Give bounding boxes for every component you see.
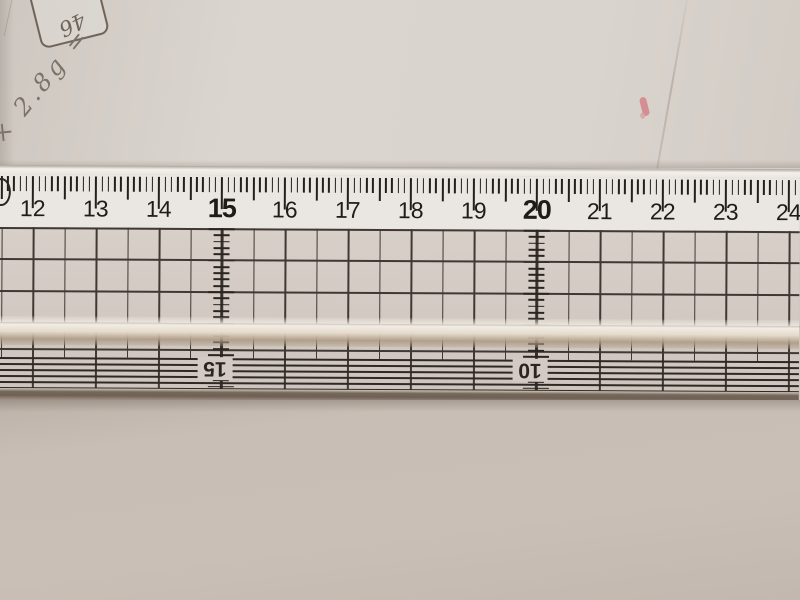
tick-mark — [246, 177, 248, 192]
mm-tick — [213, 310, 229, 312]
mm-tick — [214, 247, 230, 249]
tick-mark — [612, 179, 614, 194]
tick-mark — [681, 180, 683, 195]
tick-mark — [492, 179, 494, 194]
mm-tick — [528, 280, 544, 282]
tick-mark — [454, 178, 456, 193]
tick-mark — [353, 178, 355, 193]
tick-mark — [649, 179, 651, 194]
mm-tick — [208, 260, 234, 262]
photo-canvas: 46 × 2.8g = 12131415161718192021222324 1… — [0, 0, 800, 600]
partial-mark — [0, 178, 11, 206]
tick-mark — [486, 179, 488, 194]
mm-tick — [528, 305, 544, 307]
mm-tick — [528, 299, 544, 301]
tick-mark — [738, 180, 740, 195]
tick-mark — [183, 177, 185, 192]
tick-mark — [460, 178, 462, 193]
tick-mark — [322, 178, 324, 193]
mm-tick — [214, 234, 230, 236]
mm-tick — [529, 236, 545, 238]
tick-mark — [177, 177, 179, 192]
ruler-number: 24 — [776, 199, 800, 227]
tick-mark — [89, 176, 91, 191]
corner-crease-line — [4, 0, 13, 36]
mm-tick — [208, 291, 234, 293]
tick-mark — [593, 179, 595, 194]
mm-tick — [213, 348, 229, 350]
tick-mark — [190, 177, 192, 200]
tick-mark — [208, 177, 210, 192]
tick-mark — [139, 177, 141, 192]
tick-mark — [775, 180, 777, 195]
tick-mark — [416, 178, 418, 193]
tick-mark — [145, 177, 147, 192]
mm-tick — [214, 241, 230, 243]
ruler-grid: 1510 — [0, 227, 800, 392]
tick-mark — [706, 180, 708, 195]
tick-mark — [794, 180, 796, 195]
ruler-number: 20 — [523, 194, 551, 227]
tick-mark — [756, 180, 758, 203]
tick-mark — [643, 179, 645, 194]
tick-mark — [769, 180, 771, 195]
tick-mark — [782, 180, 784, 195]
tick-mark — [316, 178, 318, 201]
tick-mark — [385, 178, 387, 193]
tick-mark — [744, 180, 746, 195]
tick-mark — [423, 178, 425, 193]
tick-mark — [479, 179, 481, 194]
tick-mark — [523, 179, 525, 194]
ruler-number: 21 — [587, 198, 613, 226]
tick-mark — [76, 176, 78, 191]
tick-mark — [637, 179, 639, 194]
tick-mark — [568, 179, 570, 202]
pink-ink-mark — [639, 96, 650, 116]
grid-hline — [0, 348, 799, 354]
mm-tick — [213, 285, 229, 287]
tick-mark — [253, 177, 255, 200]
tick-mark — [580, 179, 582, 194]
tick-mark — [51, 176, 53, 191]
tick-mark — [360, 178, 362, 193]
mm-tick — [528, 274, 544, 276]
tick-mark — [511, 179, 513, 194]
tick-mark — [202, 177, 204, 192]
tick-mark — [448, 178, 450, 193]
tick-mark — [517, 179, 519, 194]
mm-tick — [529, 255, 545, 257]
mm-tick — [528, 286, 544, 288]
tick-mark — [171, 177, 173, 192]
tick-mark — [271, 177, 273, 192]
tick-mark — [334, 178, 336, 193]
tick-mark — [435, 178, 437, 193]
tick-mark — [328, 178, 330, 193]
tick-mark — [542, 179, 544, 194]
ruler-number: 17 — [335, 197, 361, 225]
tick-mark — [555, 179, 557, 194]
tick-mark — [341, 178, 343, 193]
tick-mark — [605, 179, 607, 194]
ruler-number: 16 — [272, 196, 298, 224]
mm-tick — [213, 272, 229, 274]
ruler-number: 12 — [20, 195, 46, 223]
tick-mark — [530, 179, 532, 194]
mm-tick — [529, 242, 545, 244]
mm-tick — [528, 268, 544, 270]
tick-mark — [366, 178, 368, 193]
tick-mark — [303, 178, 305, 193]
tick-mark — [404, 178, 406, 193]
ruler: 12131415161718192021222324 1510 — [0, 165, 800, 407]
mm-tick — [208, 354, 234, 356]
mm-tick — [213, 266, 229, 268]
bottom-scale-line — [0, 369, 799, 375]
reversed-number: 10 — [512, 359, 547, 382]
tick-mark — [668, 180, 670, 195]
tick-mark — [64, 176, 66, 199]
tick-mark — [265, 177, 267, 192]
mm-tick — [523, 356, 549, 358]
ruler-number: 23 — [713, 199, 739, 227]
tick-mark — [675, 180, 677, 195]
mm-tick — [524, 230, 550, 232]
mm-tick — [529, 249, 545, 251]
bottom-scale-line — [0, 375, 799, 381]
tick-mark — [549, 179, 551, 194]
tick-mark — [467, 178, 469, 193]
tick-mark — [120, 177, 122, 192]
tick-mark — [391, 178, 393, 193]
tick-mark — [114, 177, 116, 192]
tick-mark — [133, 177, 135, 192]
mm-tick — [213, 297, 229, 299]
tick-mark — [719, 180, 721, 195]
paper-sheet-top: 46 × 2.8g = — [0, 0, 800, 174]
tick-mark — [379, 178, 381, 201]
tick-mark — [13, 176, 15, 191]
tick-mark — [712, 180, 714, 195]
tick-mark — [693, 180, 695, 203]
ruler-number: 15 — [208, 192, 236, 225]
tick-mark — [586, 179, 588, 194]
tick-mark — [700, 180, 702, 195]
tick-mark — [215, 177, 217, 192]
bottom-scale-line — [0, 357, 799, 363]
tick-mark — [196, 177, 198, 192]
bottom-scale-line — [0, 381, 799, 387]
mm-tick — [528, 312, 544, 314]
tick-mark — [19, 176, 21, 191]
tick-mark — [561, 179, 563, 194]
tick-mark — [297, 178, 299, 193]
tick-mark — [442, 178, 444, 201]
tick-mark — [45, 176, 47, 191]
tick-mark — [108, 177, 110, 192]
ruler-number: 18 — [398, 197, 424, 225]
tick-mark — [164, 177, 166, 192]
ruler-scale-band: 12131415161718192021222324 — [0, 174, 800, 231]
mm-tick — [213, 279, 229, 281]
tick-mark — [101, 177, 103, 192]
tick-mark — [397, 178, 399, 193]
tick-mark — [750, 180, 752, 195]
tick-mark — [70, 176, 72, 191]
paper-sheet-bottom — [0, 400, 800, 600]
tick-mark — [372, 178, 374, 193]
ruler-number: 14 — [146, 196, 172, 224]
mm-tick — [528, 349, 544, 351]
tick-mark — [656, 179, 658, 194]
mm-tick — [213, 304, 229, 306]
bottom-scale-line — [0, 363, 799, 369]
tick-mark — [82, 176, 84, 191]
mm-tick — [523, 261, 549, 263]
grid-hline — [0, 258, 800, 264]
tick-mark — [309, 178, 311, 193]
tick-mark — [234, 177, 236, 192]
tick-mark — [127, 177, 129, 200]
glass-highlight — [0, 316, 799, 349]
tick-mark — [26, 176, 28, 191]
mm-tick — [214, 253, 230, 255]
tick-mark — [227, 177, 229, 192]
mm-tick — [523, 293, 549, 295]
tick-mark — [687, 180, 689, 195]
tick-mark — [240, 177, 242, 192]
tick-mark — [624, 179, 626, 194]
tick-mark — [152, 177, 154, 192]
tick-mark — [278, 177, 280, 192]
tick-mark — [731, 180, 733, 195]
ruler-number: 22 — [650, 198, 676, 226]
tick-mark — [38, 176, 40, 191]
tick-mark — [259, 177, 261, 192]
tick-mark — [574, 179, 576, 194]
tick-mark — [505, 179, 507, 202]
tick-mark — [290, 178, 292, 193]
tick-mark — [57, 176, 59, 191]
ruler-number: 19 — [461, 197, 487, 225]
reversed-number: 15 — [197, 357, 232, 380]
tick-mark — [429, 178, 431, 193]
tick-mark — [631, 179, 633, 202]
tick-mark — [618, 179, 620, 194]
tick-mark — [763, 180, 765, 195]
grid-hline — [0, 290, 799, 296]
ruler-number: 13 — [83, 195, 109, 223]
mm-tick — [209, 228, 235, 230]
tick-mark — [498, 179, 500, 194]
